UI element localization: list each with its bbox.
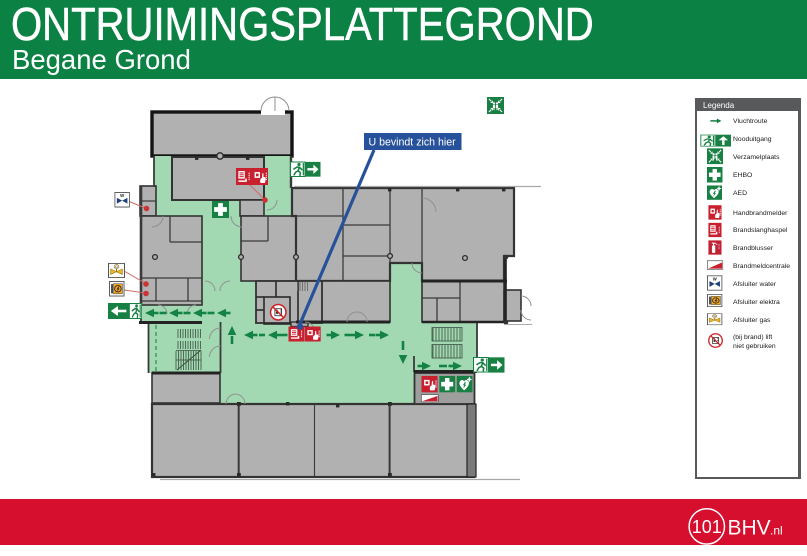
svg-text:U bevindt zich hier: U bevindt zich hier: [369, 136, 457, 148]
svg-text:101: 101: [692, 517, 722, 537]
svg-text:BHV: BHV: [728, 517, 771, 540]
svg-text:.nl: .nl: [770, 524, 783, 538]
